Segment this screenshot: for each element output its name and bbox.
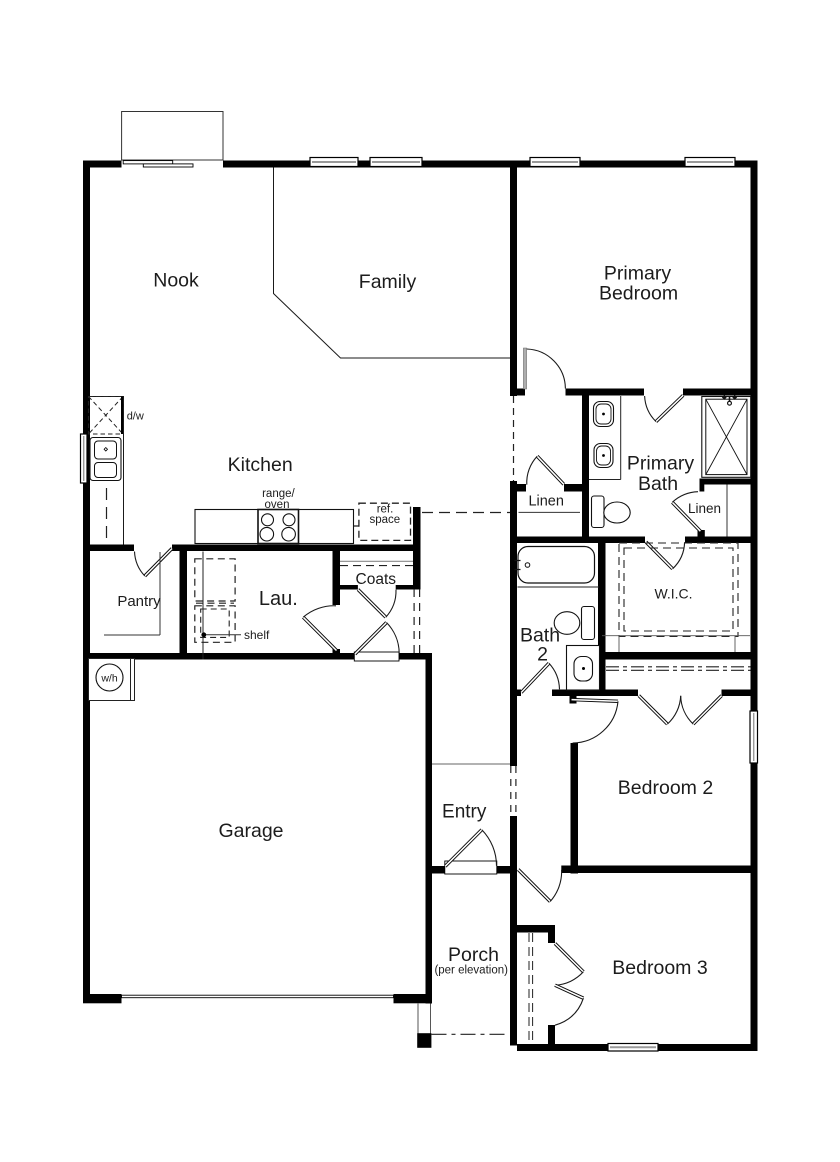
svg-text:Primary: Primary bbox=[627, 453, 694, 475]
svg-text:Porch: Porch bbox=[448, 944, 499, 966]
svg-text:Entry: Entry bbox=[442, 802, 487, 823]
svg-text:w/h: w/h bbox=[100, 673, 118, 685]
svg-text:Coats: Coats bbox=[356, 571, 397, 588]
svg-text:Garage: Garage bbox=[218, 820, 283, 842]
svg-text:Lau.: Lau. bbox=[259, 588, 298, 610]
svg-text:Linen: Linen bbox=[688, 501, 721, 516]
svg-text:Family: Family bbox=[359, 271, 417, 293]
svg-text:d/w: d/w bbox=[127, 411, 144, 423]
svg-text:shelf: shelf bbox=[244, 628, 270, 642]
svg-text:Bedroom 2: Bedroom 2 bbox=[618, 777, 713, 799]
svg-text:Kitchen: Kitchen bbox=[228, 454, 293, 476]
svg-text:Bath: Bath bbox=[638, 473, 678, 495]
svg-text:Linen: Linen bbox=[528, 493, 563, 509]
svg-text:Pantry: Pantry bbox=[117, 593, 161, 610]
svg-text:Primary: Primary bbox=[604, 263, 671, 285]
svg-text:Bedroom: Bedroom bbox=[599, 283, 678, 305]
svg-text:W.I.C.: W.I.C. bbox=[654, 586, 692, 602]
svg-text:Bedroom 3: Bedroom 3 bbox=[612, 957, 707, 979]
svg-text:oven: oven bbox=[265, 499, 290, 511]
svg-text:Nook: Nook bbox=[153, 270, 199, 292]
svg-text:(per elevation): (per elevation) bbox=[434, 965, 508, 977]
svg-text:space: space bbox=[369, 514, 400, 526]
svg-text:2: 2 bbox=[537, 644, 548, 666]
